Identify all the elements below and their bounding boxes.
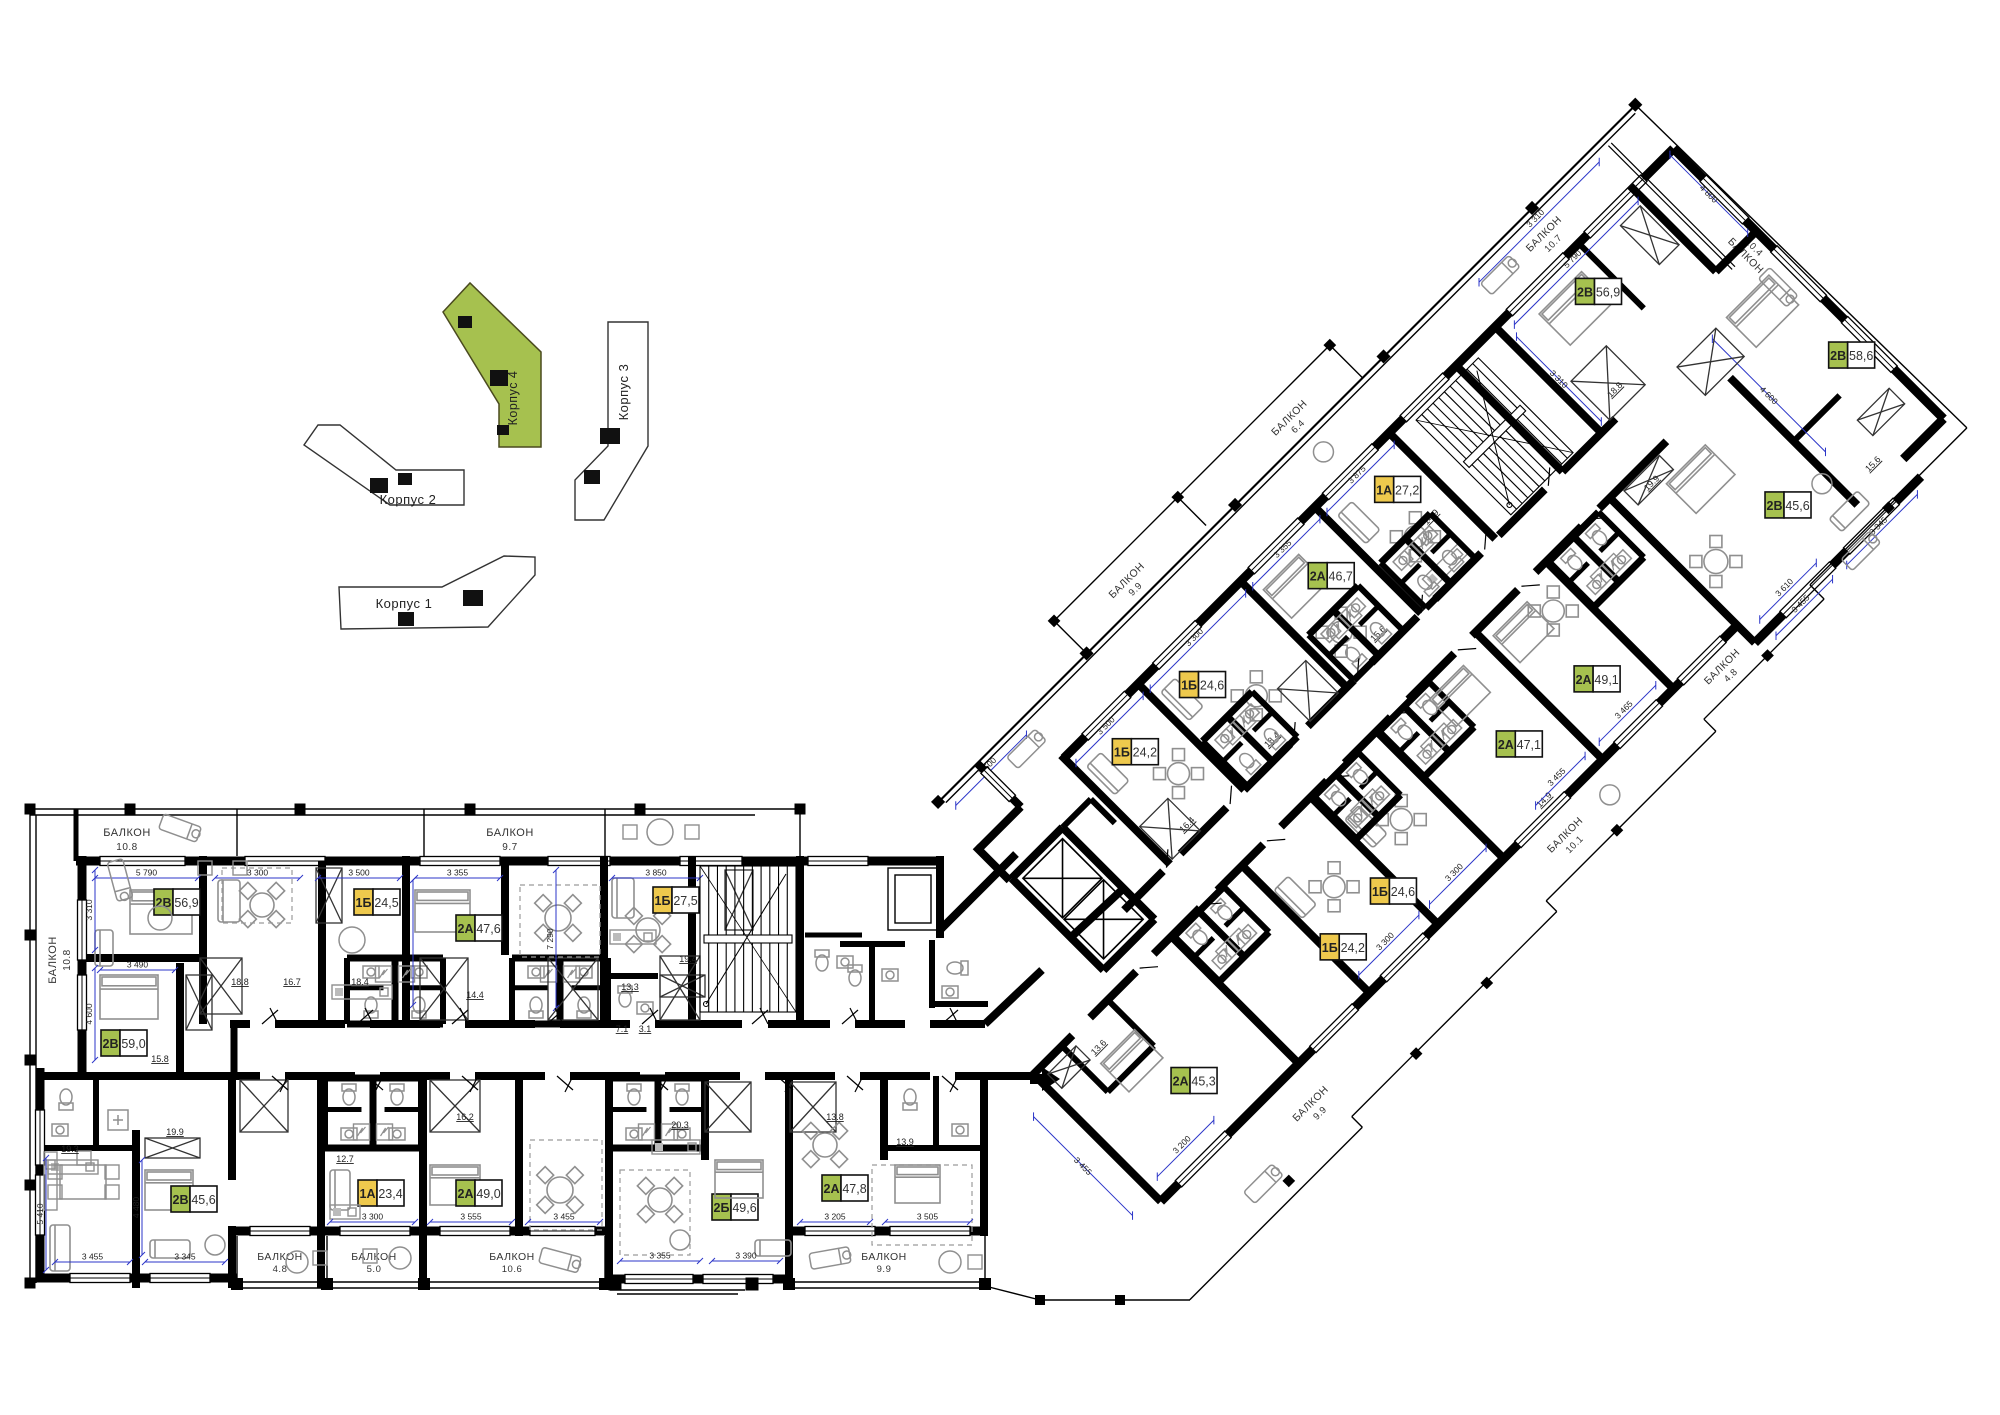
svg-text:3 850: 3 850 [645, 868, 667, 878]
svg-text:2В: 2В [1577, 285, 1593, 299]
svg-text:13.9: 13.9 [896, 1137, 914, 1147]
svg-text:3 205: 3 205 [824, 1212, 846, 1222]
svg-text:24,6: 24,6 [1200, 679, 1224, 693]
svg-text:3 390: 3 390 [735, 1251, 757, 1261]
svg-text:16.2: 16.2 [456, 1112, 474, 1122]
svg-text:14.4: 14.4 [466, 990, 484, 1000]
svg-text:5.0: 5.0 [367, 1264, 382, 1275]
svg-text:2А: 2А [1576, 673, 1592, 687]
svg-text:9.9: 9.9 [877, 1264, 892, 1275]
svg-text:1Б: 1Б [1181, 679, 1197, 693]
svg-text:49,1: 49,1 [1594, 673, 1618, 687]
svg-text:7 290: 7 290 [545, 928, 555, 950]
svg-text:1Б: 1Б [655, 894, 671, 908]
svg-text:56,9: 56,9 [1596, 285, 1620, 299]
svg-text:4.8: 4.8 [273, 1264, 288, 1275]
svg-text:5 790: 5 790 [136, 868, 158, 878]
svg-text:9.7: 9.7 [502, 842, 517, 853]
svg-text:56,9: 56,9 [174, 896, 198, 910]
svg-text:3.1: 3.1 [639, 1024, 652, 1034]
svg-text:2В: 2В [156, 896, 172, 910]
svg-text:БАЛКОН: БАЛКОН [103, 827, 151, 839]
svg-text:10.8: 10.8 [62, 949, 73, 970]
svg-text:БАЛКОН: БАЛКОН [861, 1251, 907, 1263]
svg-text:46,7: 46,7 [1329, 570, 1353, 584]
svg-text:1Б: 1Б [1322, 941, 1338, 955]
svg-text:3 355: 3 355 [447, 868, 469, 878]
svg-text:2А: 2А [1498, 738, 1514, 752]
svg-text:1Б: 1Б [1372, 885, 1388, 899]
svg-text:58,6: 58,6 [1849, 349, 1873, 363]
svg-text:Корпус 3: Корпус 3 [616, 364, 631, 421]
svg-text:24,2: 24,2 [1133, 746, 1157, 760]
svg-text:3 300: 3 300 [362, 1212, 384, 1222]
svg-text:3 300: 3 300 [247, 868, 269, 878]
svg-text:4 480: 4 480 [131, 1197, 141, 1219]
svg-text:2В: 2В [173, 1193, 189, 1207]
svg-text:5 410: 5 410 [35, 1203, 45, 1225]
svg-text:1А: 1А [1376, 483, 1392, 497]
svg-text:45,6: 45,6 [1785, 499, 1809, 513]
svg-text:3 455: 3 455 [553, 1212, 575, 1222]
svg-text:47,1: 47,1 [1517, 738, 1541, 752]
svg-text:БАЛКОН: БАЛКОН [489, 1251, 535, 1263]
svg-text:2В: 2В [103, 1037, 119, 1051]
svg-text:1Б: 1Б [1114, 746, 1130, 760]
svg-text:1Б: 1Б [356, 896, 372, 910]
svg-text:Корпус 4: Корпус 4 [506, 371, 520, 426]
svg-text:БАЛКОН: БАЛКОН [486, 827, 534, 839]
svg-text:47,6: 47,6 [476, 922, 500, 936]
svg-text:24,2: 24,2 [1341, 941, 1365, 955]
svg-text:18.4: 18.4 [351, 977, 369, 987]
svg-text:10.6: 10.6 [502, 1264, 523, 1275]
svg-text:49,0: 49,0 [476, 1187, 500, 1201]
svg-text:2А: 2А [1310, 570, 1326, 584]
svg-text:19.4: 19.4 [679, 954, 697, 964]
svg-text:19.9: 19.9 [166, 1127, 184, 1137]
svg-text:19.3: 19.3 [61, 1144, 79, 1154]
svg-text:27,5: 27,5 [673, 894, 697, 908]
svg-text:3 455: 3 455 [82, 1252, 104, 1262]
svg-text:23,4: 23,4 [378, 1187, 402, 1201]
svg-text:24,6: 24,6 [1391, 885, 1415, 899]
svg-text:3 500: 3 500 [348, 868, 370, 878]
svg-text:2Б: 2Б [714, 1201, 730, 1215]
svg-text:45,3: 45,3 [1191, 1075, 1215, 1089]
svg-text:49,6: 49,6 [732, 1201, 756, 1215]
svg-text:3 345: 3 345 [174, 1252, 196, 1262]
svg-text:Корпус 2: Корпус 2 [380, 492, 437, 507]
svg-text:24,5: 24,5 [374, 896, 398, 910]
svg-text:2А: 2А [458, 922, 474, 936]
svg-text:3 310: 3 310 [84, 899, 94, 921]
svg-text:1А: 1А [360, 1187, 376, 1201]
svg-text:Корпус 1: Корпус 1 [376, 596, 433, 611]
svg-text:16.7: 16.7 [283, 977, 301, 987]
svg-text:2А: 2А [1173, 1075, 1189, 1089]
svg-text:4 600: 4 600 [84, 1003, 94, 1025]
svg-text:БАЛКОН: БАЛКОН [257, 1251, 303, 1263]
svg-text:27,2: 27,2 [1395, 483, 1419, 497]
svg-text:2В: 2В [1830, 349, 1846, 363]
svg-text:15.8: 15.8 [151, 1054, 169, 1064]
svg-text:3 505: 3 505 [917, 1212, 939, 1222]
svg-text:3 490: 3 490 [127, 960, 149, 970]
svg-text:10.8: 10.8 [116, 842, 137, 853]
svg-text:2В: 2В [1767, 499, 1783, 513]
svg-text:18.8: 18.8 [231, 977, 249, 987]
svg-text:3 555: 3 555 [460, 1212, 482, 1222]
svg-text:59,0: 59,0 [121, 1037, 145, 1051]
svg-text:13.8: 13.8 [826, 1112, 844, 1122]
svg-text:7.1: 7.1 [616, 1024, 629, 1034]
svg-text:12.7: 12.7 [336, 1154, 354, 1164]
svg-text:3 355: 3 355 [649, 1251, 671, 1261]
svg-text:20.3: 20.3 [671, 1120, 689, 1130]
svg-text:2А: 2А [824, 1182, 840, 1196]
svg-text:2А: 2А [458, 1187, 474, 1201]
svg-text:47,8: 47,8 [842, 1182, 866, 1196]
svg-text:13.3: 13.3 [621, 982, 639, 992]
svg-text:БАЛКОН: БАЛКОН [47, 936, 59, 984]
svg-text:45,6: 45,6 [191, 1193, 215, 1207]
